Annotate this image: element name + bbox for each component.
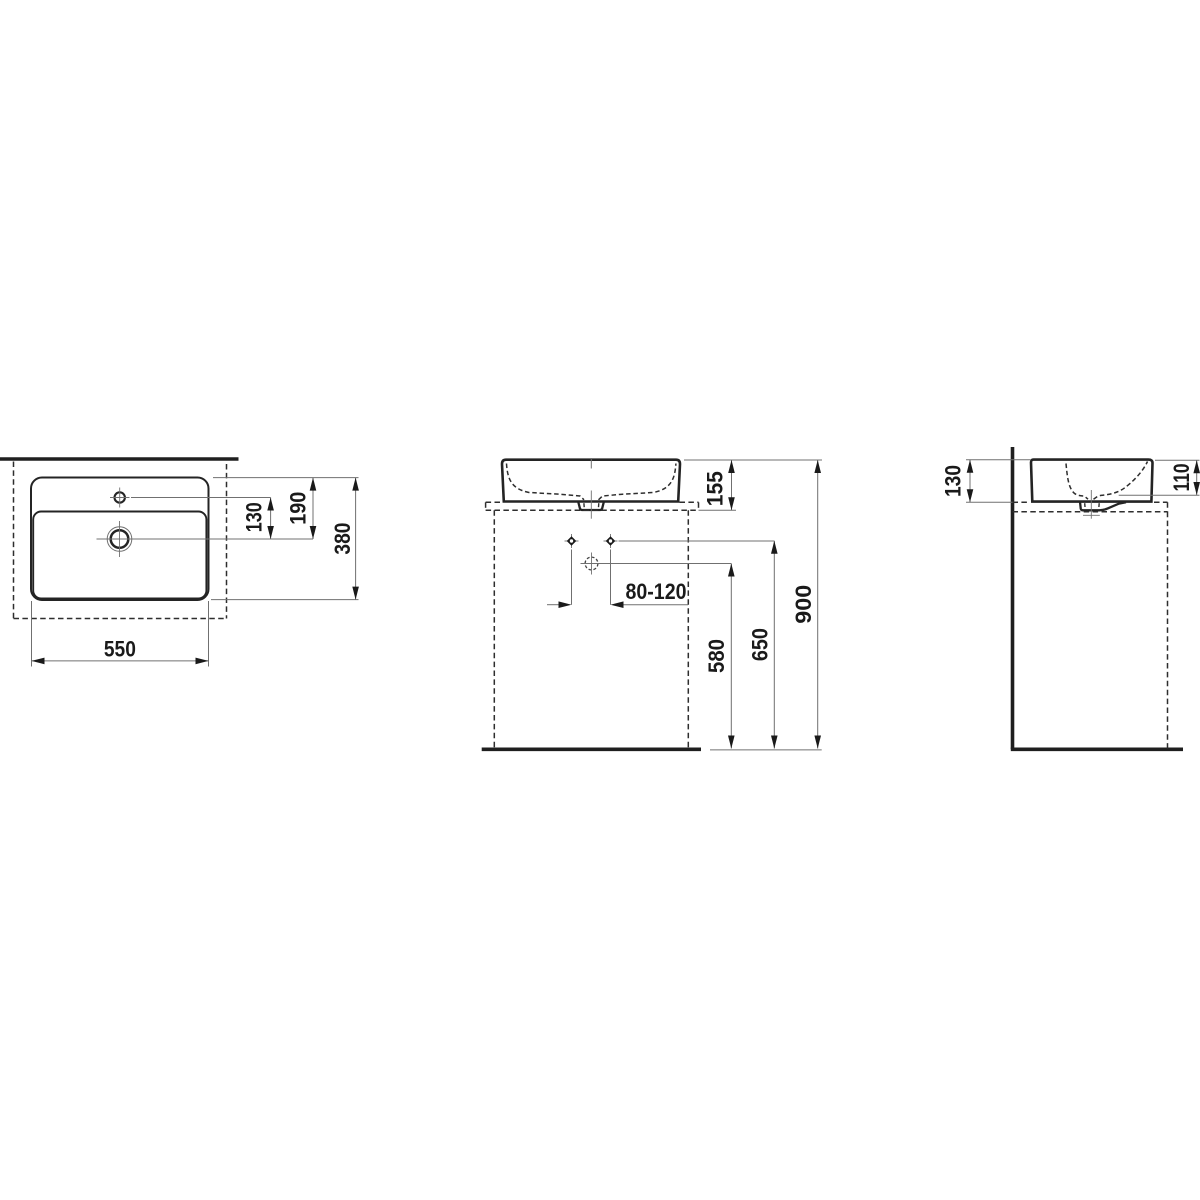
svg-text:155: 155 — [703, 471, 728, 506]
svg-text:110: 110 — [1169, 464, 1194, 492]
svg-text:80-120: 80-120 — [626, 579, 687, 604]
svg-text:550: 550 — [104, 637, 136, 662]
svg-text:900: 900 — [791, 585, 816, 624]
svg-text:130: 130 — [941, 465, 966, 497]
svg-text:130: 130 — [242, 502, 267, 532]
svg-text:380: 380 — [330, 523, 355, 555]
svg-text:650: 650 — [747, 628, 772, 661]
svg-text:190: 190 — [286, 492, 311, 525]
svg-text:580: 580 — [704, 639, 729, 673]
